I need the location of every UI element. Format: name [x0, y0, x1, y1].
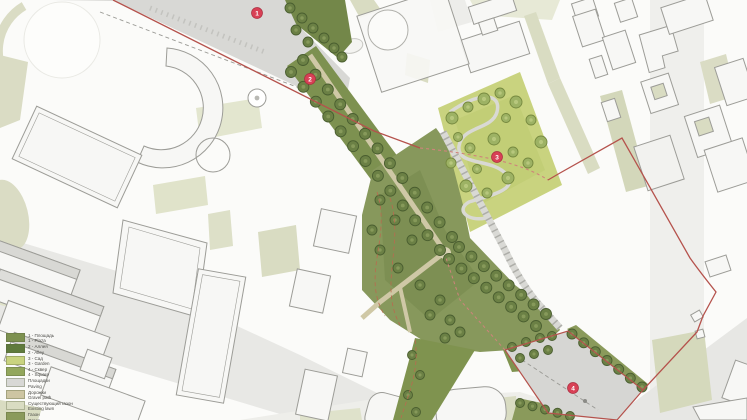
tree-icon — [326, 115, 330, 119]
legend-swatch — [6, 367, 25, 376]
legend-swatch — [6, 401, 25, 410]
legend-swatch — [6, 356, 25, 365]
tree-icon — [522, 315, 526, 319]
tree-icon — [494, 274, 498, 278]
tree-icon — [492, 137, 496, 141]
area-marker-1: 1 — [252, 8, 263, 19]
tree-icon — [376, 174, 380, 178]
tree-icon — [413, 218, 417, 222]
tree-icon — [438, 298, 442, 302]
tree-icon — [472, 276, 476, 280]
tree-icon — [519, 293, 523, 297]
tree-icon — [460, 267, 464, 271]
tree-icon — [498, 91, 502, 95]
legend-label: ДорожкиGravel path — [28, 390, 51, 400]
legend-label: ГазонGrass — [28, 412, 40, 420]
svg-text:4: 4 — [571, 385, 575, 392]
svg-text:2: 2 — [308, 76, 312, 83]
tree-icon — [466, 105, 470, 109]
tree-icon — [470, 255, 474, 259]
round-plaza — [24, 2, 100, 78]
tree-icon — [514, 100, 518, 104]
tree-icon — [388, 189, 392, 193]
tree-icon — [450, 235, 454, 239]
legend-row: 4 - Сквер4 - Square — [6, 367, 79, 377]
tree-icon — [438, 248, 442, 252]
legend-swatch — [6, 378, 25, 387]
svg-text:1: 1 — [255, 10, 259, 17]
tree-icon — [475, 167, 478, 170]
tree-icon — [449, 161, 453, 165]
tree-icon — [301, 85, 305, 89]
legend-label: 4 - Сквер4 - Square — [28, 367, 49, 377]
tree-icon — [413, 191, 417, 195]
tree-icon — [294, 28, 298, 32]
legend-label: 2 - Аллея2 - Alley — [28, 344, 48, 354]
tree-icon — [401, 204, 405, 208]
tree-icon — [468, 146, 472, 150]
tree-icon — [400, 176, 404, 180]
tree-icon — [509, 305, 513, 309]
tree-icon — [534, 324, 538, 328]
legend-swatch — [6, 412, 25, 420]
tree-icon — [414, 410, 417, 413]
tree-icon — [288, 6, 292, 10]
legend-row: ДорожкиGravel path — [6, 390, 79, 400]
tree-icon — [482, 97, 486, 101]
tree-icon — [301, 58, 305, 62]
legend-label: Существующий газонExisting lawn — [28, 401, 73, 411]
tree-icon — [539, 140, 543, 144]
tree-icon — [418, 283, 422, 287]
tree-icon — [388, 161, 392, 165]
tree-icon — [456, 135, 459, 138]
tree-icon — [497, 295, 501, 299]
area-marker-2: 2 — [305, 74, 316, 85]
tree-icon — [370, 228, 374, 232]
tree-icon — [426, 233, 430, 237]
tree-icon — [351, 144, 355, 148]
legend-swatch — [6, 390, 25, 399]
tree-icon — [506, 176, 510, 180]
tree-icon — [438, 220, 442, 224]
tree-icon — [428, 313, 432, 317]
svg-text:3: 3 — [495, 154, 499, 161]
tree-icon — [443, 336, 447, 340]
tree-icon — [396, 266, 400, 270]
tree-icon — [339, 129, 343, 133]
legend-row: ПлощадкиPaving — [6, 378, 79, 388]
tree-icon — [529, 118, 533, 122]
tree-icon — [326, 88, 330, 92]
tree-icon — [376, 147, 380, 151]
legend-row: ГазонGrass — [6, 412, 79, 420]
tree-icon — [518, 401, 521, 404]
legend-row: 1 - Площадь1 - Plaza — [6, 333, 79, 343]
legend-label: 1 - Площадь1 - Plaza — [28, 333, 54, 343]
tree-icon — [338, 102, 342, 106]
area-marker-4: 4 — [568, 383, 579, 394]
tree-icon — [410, 238, 414, 242]
tree-icon — [518, 356, 521, 359]
tree-icon — [340, 55, 344, 59]
tree-icon — [322, 36, 326, 40]
tree-icon — [544, 312, 548, 316]
tree-icon — [485, 191, 489, 195]
tree-icon — [306, 40, 310, 44]
tree-icon — [393, 218, 397, 222]
tree-icon — [504, 116, 507, 119]
master-plan-drawing: 1 2 3 4 — [0, 0, 747, 420]
tree-icon — [482, 264, 486, 268]
tree-icon — [425, 206, 429, 210]
site-plan-canvas: 1 2 3 4 1 - Площадь1 - Plaza2 - Аллея2 -… — [0, 0, 747, 420]
tree-icon — [511, 150, 515, 154]
legend-label: 3 - Сад3 - Garden — [28, 356, 50, 366]
tree-icon — [363, 132, 367, 136]
area-marker-3: 3 — [492, 152, 503, 163]
legend-row: 2 - Аллея2 - Alley — [6, 344, 79, 354]
tree-icon — [484, 286, 488, 290]
tree-icon — [457, 245, 461, 249]
tree-icon — [546, 348, 549, 351]
tree-icon — [458, 330, 462, 334]
tree-icon — [448, 318, 452, 322]
legend-swatch — [6, 344, 25, 353]
tree-icon — [464, 184, 468, 188]
tree-icon — [410, 353, 413, 356]
tree-icon — [300, 16, 304, 20]
legend-row: 3 - Сад3 - Garden — [6, 356, 79, 366]
tree-icon — [526, 161, 530, 165]
legend-label: ПлощадкиPaving — [28, 378, 50, 388]
tree-icon — [418, 373, 421, 376]
tree-icon — [289, 70, 293, 74]
legend-row: Существующий газонExisting lawn — [6, 401, 79, 411]
tree-icon — [532, 352, 535, 355]
tree-icon — [364, 159, 368, 163]
legend: 1 - Площадь1 - Plaza2 - Аллея2 - Alley3 … — [6, 333, 79, 420]
tree-icon — [311, 26, 315, 30]
tree-icon — [532, 303, 536, 307]
tree-icon — [450, 116, 454, 120]
tree-icon — [332, 46, 336, 50]
legend-swatch — [6, 333, 25, 342]
tree-icon — [447, 257, 451, 261]
tree-icon — [531, 405, 534, 408]
tree-icon — [507, 283, 511, 287]
